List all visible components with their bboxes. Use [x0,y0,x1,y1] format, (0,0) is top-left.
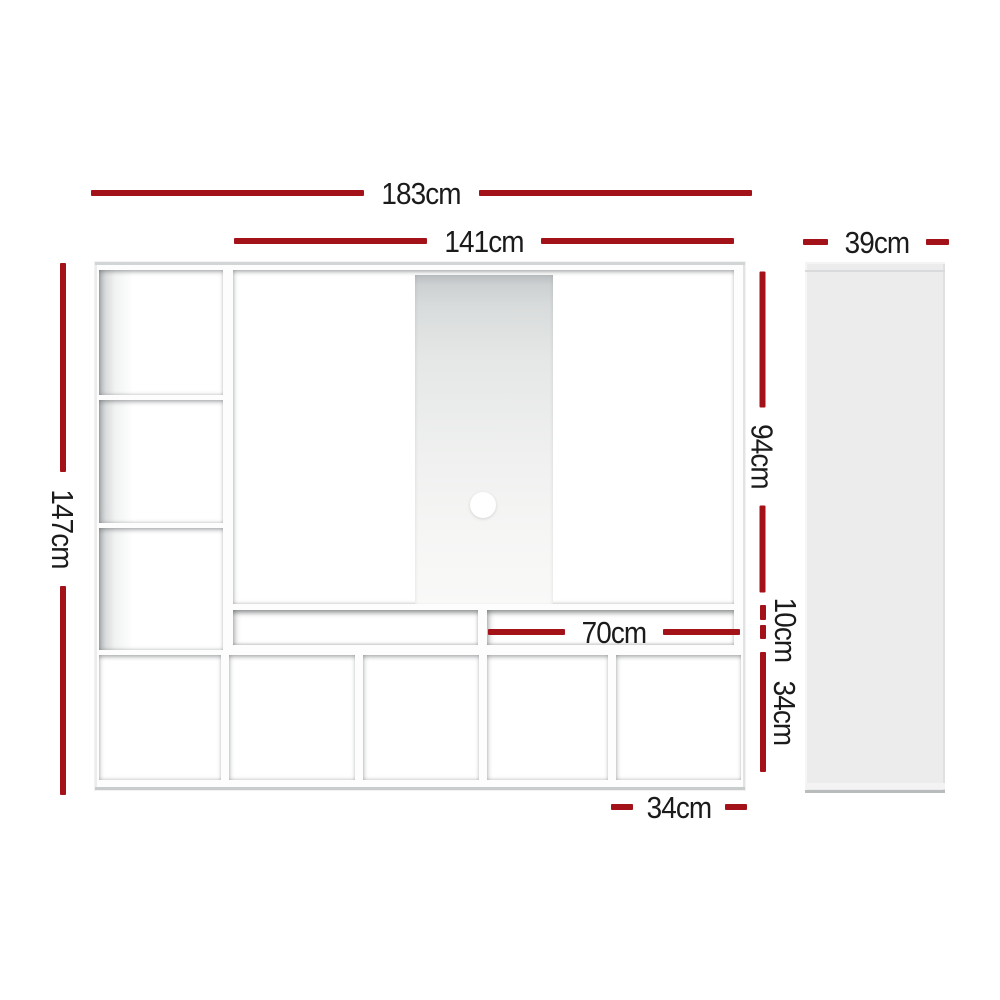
dim-label: 34cm [770,681,801,746]
left-cube-top [99,270,223,395]
dim-line-segment [803,239,828,245]
dim-tv-opening-width: 141cm [234,224,734,258]
dim-line-segment [760,272,766,408]
product-dimension-diagram: 183cm 141cm 39cm 147cm 94cm 10cm 34cm [0,0,1000,1000]
dim-line-segment [663,629,740,635]
bottom-cube-3 [363,655,479,780]
media-slot-left [233,610,478,645]
side-view [805,262,945,793]
dim-label: 94cm [747,424,778,489]
dim-cube-height-label: 34cm [770,673,800,753]
dim-total-width: 183cm [91,176,752,210]
front-view [95,262,745,790]
dim-label: 147cm [48,489,79,568]
dim-slot-width: 70cm [488,615,740,649]
dim-tv-opening-height: 94cm [746,272,780,593]
side-top-edge [805,270,945,272]
dim-label: 34cm [647,792,712,823]
tv-compartment [233,270,734,604]
dim-cube-width: 34cm [611,790,741,824]
dim-label: 141cm [444,226,523,257]
dim-line-segment [60,263,66,472]
dim-line-segment [479,190,752,196]
dim-line-segment [760,605,766,620]
left-cube-bottom [99,528,223,650]
bottom-cube-4 [487,655,608,780]
side-bottom-edge [805,783,945,789]
dim-label: 10cm [771,598,802,663]
dim-line-segment [926,239,949,245]
bottom-cube-2 [229,655,355,780]
dim-line-segment [541,238,734,244]
cable-hole [470,492,496,518]
dim-line-segment [725,804,747,810]
dim-label: 183cm [382,178,461,209]
dim-label: 39cm [845,227,910,258]
dim-depth: 39cm [803,225,945,259]
dim-line-segment [234,238,427,244]
dim-line-segment [91,190,364,196]
bottom-cube-1 [99,655,221,780]
dim-line-segment [760,652,766,772]
dim-line-segment [60,586,66,795]
bottom-cube-5 [616,655,741,780]
left-cube-middle [99,400,223,523]
dim-line-segment [760,625,766,639]
dim-label: 70cm [582,617,647,648]
dim-total-height: 147cm [46,263,80,795]
dim-cube-height-line [760,652,766,772]
dim-slot-height-ticks [760,605,766,639]
dim-line-segment [488,629,565,635]
dim-line-segment [611,804,633,810]
dim-line-segment [760,505,766,592]
tv-back-panel [415,275,553,604]
dim-slot-height-label: 10cm [771,590,801,670]
